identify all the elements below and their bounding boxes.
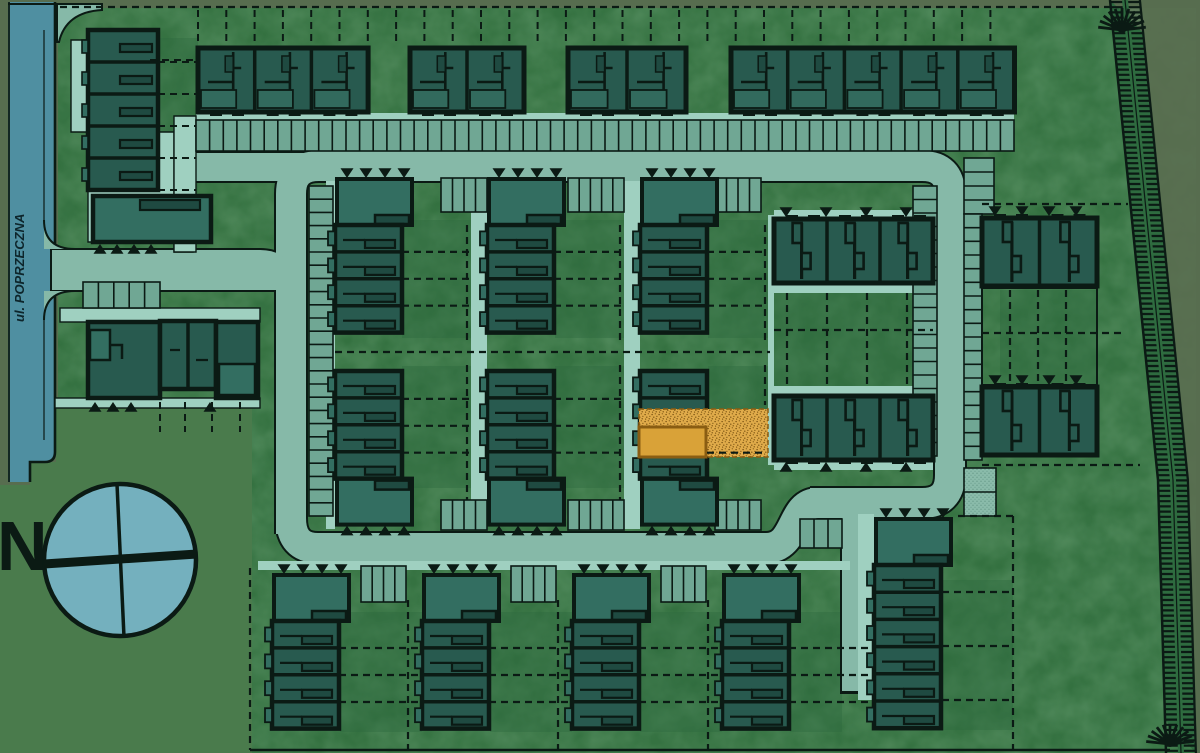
svg-text:N: N [0,507,48,585]
svg-text:ul. POPRZECZNA: ul. POPRZECZNA [12,214,27,322]
